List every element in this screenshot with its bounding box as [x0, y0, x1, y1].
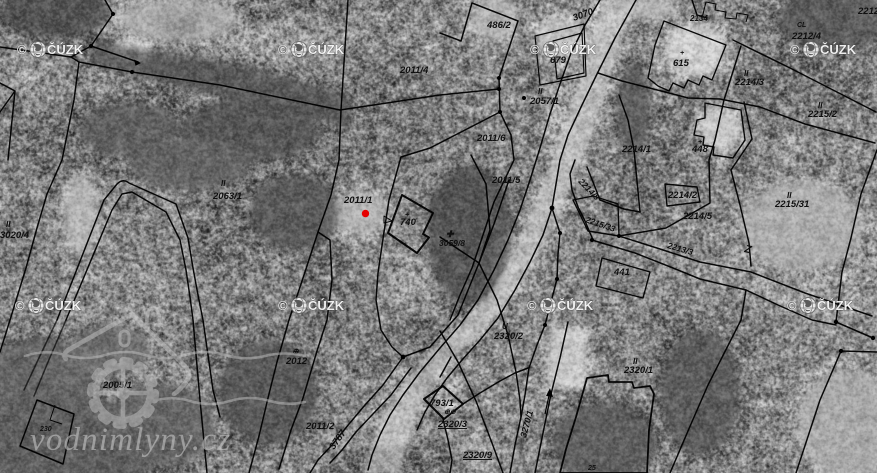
svg-text:2012: 2012 — [285, 356, 308, 367]
svg-text:486/2: 486/2 — [486, 20, 511, 31]
svg-text:2011/4: 2011/4 — [399, 65, 429, 76]
svg-text:+: + — [698, 139, 702, 146]
svg-text:2320/9: 2320/9 — [462, 450, 493, 461]
svg-text:2057/1: 2057/1 — [529, 96, 559, 107]
svg-text:CL: CL — [797, 22, 806, 29]
svg-text:II: II — [6, 220, 11, 229]
svg-text:II: II — [744, 69, 749, 78]
svg-text:615: 615 — [673, 58, 690, 69]
svg-text:2215/2: 2215/2 — [807, 109, 838, 120]
svg-text:2011/5: 2011/5 — [491, 175, 521, 186]
svg-text:2214/5: 2214/5 — [682, 211, 713, 222]
svg-text:II: II — [818, 101, 823, 110]
svg-text:II: II — [538, 87, 543, 96]
svg-text:793/1: 793/1 — [430, 398, 454, 409]
svg-text:441: 441 — [613, 267, 630, 278]
svg-text:2011/2: 2011/2 — [305, 421, 335, 432]
svg-text:∟: ∟ — [618, 261, 625, 268]
svg-text:vodnimlyny.cz: vodnimlyny.cz — [30, 422, 230, 458]
svg-text:25: 25 — [587, 465, 596, 472]
svg-text:+: + — [405, 212, 409, 219]
svg-text:2215/31: 2215/31 — [774, 199, 809, 210]
svg-text:2212/: 2212/ — [857, 6, 877, 17]
svg-text:2320/2: 2320/2 — [493, 331, 524, 342]
svg-text:2214/3: 2214/3 — [734, 77, 765, 88]
svg-text:2063/1: 2063/1 — [212, 191, 242, 202]
svg-text:II: II — [221, 179, 226, 188]
svg-text:3059/8: 3059/8 — [439, 238, 465, 248]
svg-text:II: II — [633, 357, 638, 366]
svg-text:2214/1: 2214/1 — [621, 144, 651, 155]
svg-text:2011/1: 2011/1 — [343, 195, 372, 206]
svg-text:2320/3: 2320/3 — [437, 419, 468, 430]
svg-text:U: U — [502, 322, 508, 331]
svg-text:+: + — [680, 50, 684, 57]
svg-text:II: II — [787, 191, 792, 200]
svg-text:⊕⊕: ⊕⊕ — [444, 409, 457, 416]
svg-text:2134: 2134 — [689, 14, 708, 23]
svg-text:2320/1: 2320/1 — [623, 365, 653, 376]
svg-text:2011/6: 2011/6 — [476, 133, 506, 144]
svg-text:2214/2: 2214/2 — [667, 190, 698, 201]
svg-text:2212/4: 2212/4 — [791, 31, 822, 42]
svg-text:3020/4: 3020/4 — [0, 230, 30, 241]
